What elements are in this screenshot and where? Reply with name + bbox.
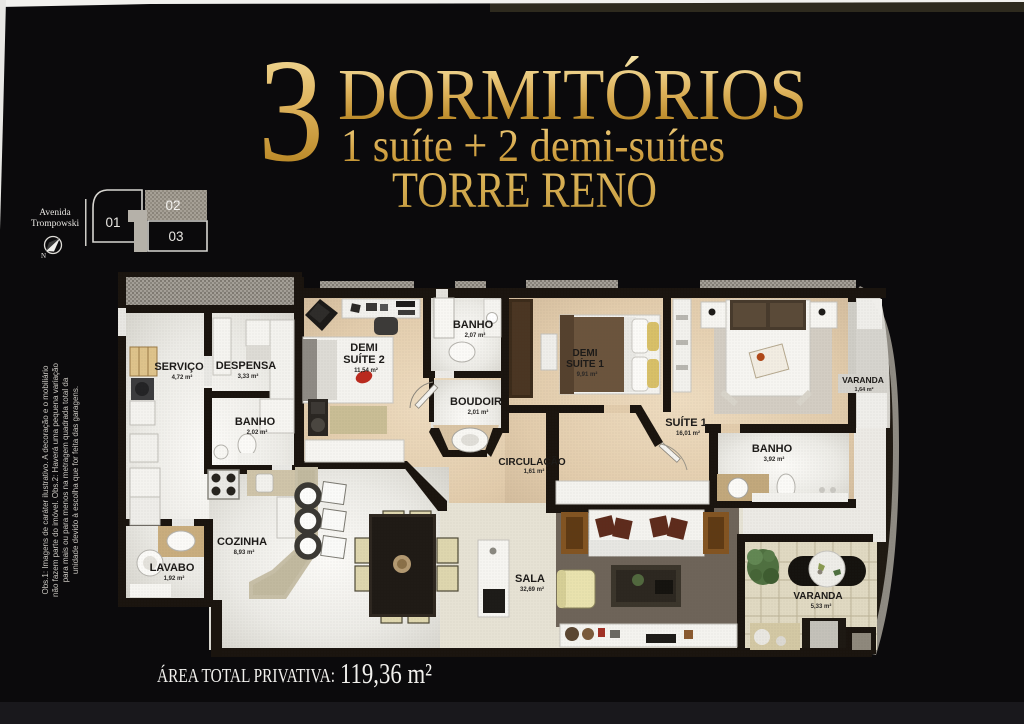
svg-text:para mais ou para menos na met: para mais ou para menos na metragem quad… [61,377,70,582]
svg-text:Avenida: Avenida [39,208,71,218]
svg-text:unidade devido à escolha que f: unidade devido à escolha que for feita d… [71,386,80,574]
svg-text:3: 3 [258,29,324,193]
svg-text:N: N [41,252,46,260]
svg-text:TORRE RENO: TORRE RENO [392,163,657,219]
svg-text:Trompowski: Trompowski [31,219,80,229]
svg-text:03: 03 [168,229,183,244]
svg-text:ÁREA TOTAL PRIVATIVA:: ÁREA TOTAL PRIVATIVA: [157,664,335,687]
svg-text:02: 02 [165,198,180,213]
svg-text:Obs.1: Imagens de caráter ilus: Obs.1: Imagens de caráter ilustrativo. A… [41,365,50,595]
svg-text:não fazem parte do imóvel. Obs: não fazem parte do imóvel. Obs.2: Haverá… [51,363,60,597]
svg-text:01: 01 [105,215,120,230]
svg-text:119,36 m²: 119,36 m² [340,658,432,690]
